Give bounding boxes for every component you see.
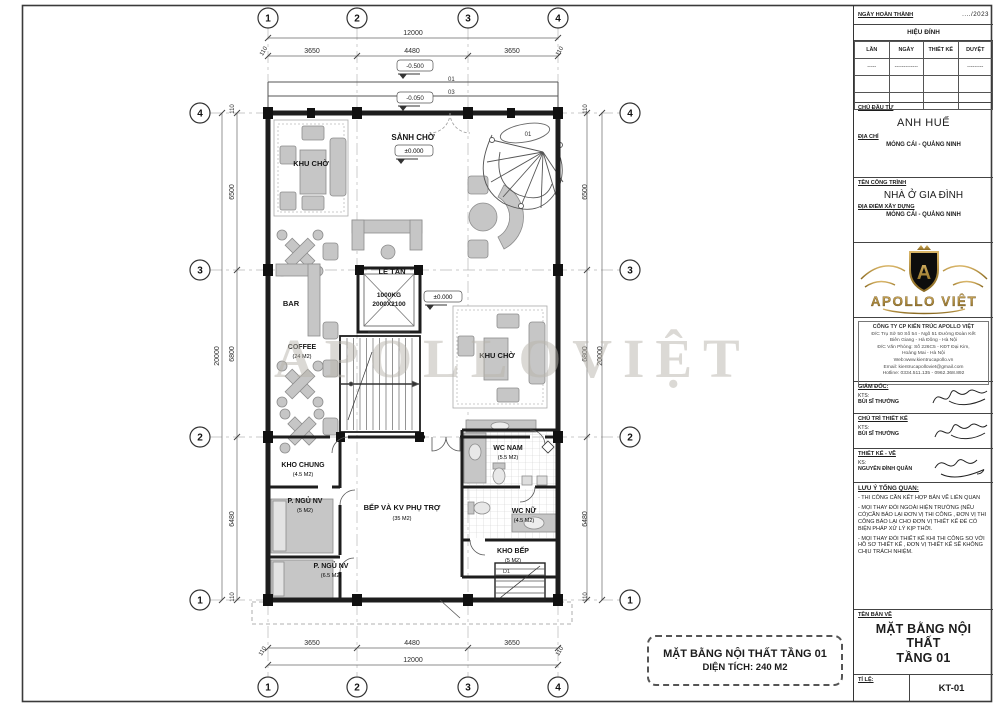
rev-cell bbox=[855, 76, 890, 93]
logo-brand-text: APOLLO VIỆT bbox=[870, 294, 977, 309]
dim-right-110a: 110 bbox=[583, 104, 589, 114]
room-area-kho-chung: (4.5 M2) bbox=[293, 472, 314, 478]
room-area-ngu2: (6.5 M2) bbox=[321, 573, 342, 579]
general-notes: LƯU Ý TỔNG QUAN: - THI CÔNG CẦN KẾT HỢP … bbox=[854, 483, 993, 610]
drawing-title-line1: MẶT BẰNG NỘI THẤT bbox=[858, 622, 989, 650]
room-label-ngu1: P. NGỦ NV bbox=[288, 496, 323, 505]
company-line: Hotline: 0334.511.135 - 0962.368.892 bbox=[860, 371, 987, 378]
sig-name: NGUYỄN ĐÌNH QUÂN bbox=[858, 466, 920, 472]
dim-left-6500: 6500 bbox=[229, 184, 236, 200]
level-step: -0.050 bbox=[406, 95, 424, 102]
lift-label-1: 1000KG bbox=[377, 292, 401, 299]
dim-top-3650b: 3650 bbox=[504, 48, 520, 55]
svg-text:1: 1 bbox=[265, 14, 271, 25]
door-tag-d1: D1 bbox=[503, 569, 510, 575]
spiral-stair-tag: 01 bbox=[525, 132, 532, 138]
plan-caption: MẶT BẰNG NỘI THẤT TẦNG 01 DIỆN TÍCH: 240… bbox=[647, 635, 843, 686]
sig-role: CHỦ TRÌ THIẾT KẾ bbox=[858, 416, 920, 422]
company-logo: A APOLLO VIỆT bbox=[857, 245, 991, 316]
dim-top-total: 12000 bbox=[403, 30, 423, 37]
main-stair bbox=[340, 338, 420, 430]
drawing-title-label: TÊN BẢN VẼ bbox=[858, 612, 989, 618]
project-name: NHÀ Ở GIA ĐÌNH bbox=[858, 190, 989, 201]
room-area-bep: (35 M2) bbox=[393, 516, 412, 522]
svg-text:4: 4 bbox=[555, 14, 561, 25]
room-label-coffee: COFFEE bbox=[288, 344, 317, 351]
svg-text:3: 3 bbox=[197, 266, 203, 277]
company-info-section: CÔNG TY CP KIẾN TRÚC APOLLO VIỆT Đ/C Trụ… bbox=[854, 318, 993, 382]
dim-right-6500: 6500 bbox=[582, 184, 589, 200]
owner-name: ANH HUẾ bbox=[858, 117, 989, 129]
dim-left-6800: 6800 bbox=[229, 346, 236, 362]
company-line: Biên Giang - Hà Đông - Hà Nội bbox=[860, 338, 987, 345]
level-lobby: ±0.000 bbox=[405, 148, 424, 155]
dim-right-total: 20000 bbox=[597, 346, 604, 366]
signature-draftsman: THIẾT KẾ - VẼ KS: NGUYỄN ĐÌNH QUÂN bbox=[854, 449, 993, 483]
company-line: Web:www.kientrucapollo.vn bbox=[860, 358, 987, 365]
room-area-kho-bep: (5 M2) bbox=[505, 558, 521, 564]
owner-section: CHỦ ĐẦU TƯ ANH HUẾ ĐỊA CHỈ MÓNG CÁI - QU… bbox=[854, 103, 993, 178]
svg-text:4: 4 bbox=[627, 109, 633, 120]
svg-text:2: 2 bbox=[627, 433, 633, 444]
signature-mark bbox=[927, 383, 991, 411]
completion-date-label: NGÀY HOÀN THÀNH bbox=[858, 12, 913, 18]
rev-cell bbox=[958, 76, 993, 93]
dim-bot-total: 12000 bbox=[403, 657, 423, 664]
dim-right-110b: 110 bbox=[583, 592, 589, 602]
svg-text:4: 4 bbox=[555, 683, 561, 694]
dim-bot-4480: 4480 bbox=[404, 640, 420, 647]
room-label-khu-cho: KHU CHỜ bbox=[293, 159, 329, 168]
room-area-wc-nu: (4.5 M2) bbox=[514, 518, 535, 524]
sig-role: GIÁM ĐỐC: bbox=[858, 384, 920, 390]
sheet-number: KT-01 bbox=[910, 675, 993, 702]
dim-bot-110b: 110 bbox=[555, 645, 565, 657]
svg-text:3: 3 bbox=[465, 14, 471, 25]
plan-caption-title: MẶT BẰNG NỘI THẤT TẦNG 01 bbox=[663, 648, 827, 660]
svg-text:2: 2 bbox=[197, 433, 203, 444]
note-item: - MỌI THAY ĐỔI THIẾT KẾ KHI THI CÔNG SO … bbox=[858, 536, 989, 557]
svg-text:2: 2 bbox=[354, 14, 360, 25]
scale-and-number-row: TỈ LỆ: KT-01 bbox=[854, 675, 993, 702]
dim-top-3650a: 3650 bbox=[304, 48, 320, 55]
spiral-stair bbox=[483, 120, 563, 210]
owner-address-label: ĐỊA CHỈ bbox=[858, 134, 989, 140]
logo-crown bbox=[917, 245, 931, 250]
level-tag03: 03 bbox=[448, 90, 455, 96]
completion-date-value: ..../2023 bbox=[962, 11, 989, 18]
room-label-bar: BAR bbox=[283, 299, 300, 308]
room-area-wc-nam: (5.5 M2) bbox=[498, 455, 519, 461]
signature-director: GIÁM ĐỐC: KTS: BÙI SĨ THƯỞNG bbox=[854, 382, 993, 414]
svg-text:4: 4 bbox=[197, 109, 203, 120]
room-label-le-tan: LỄ TÂN bbox=[378, 267, 405, 276]
svg-text:1: 1 bbox=[265, 683, 271, 694]
floor-plan-svg: 12000 110 3650 4480 3650 110 12000 110 3… bbox=[0, 0, 1000, 707]
dim-left-6480: 6480 bbox=[229, 511, 236, 527]
rev-cell bbox=[889, 76, 924, 93]
project-section: TÊN CÔNG TRÌNH NHÀ Ở GIA ĐÌNH ĐỊA ĐIỂM X… bbox=[854, 178, 993, 243]
level-tag01: 01 bbox=[448, 77, 455, 83]
project-site-label: ĐỊA ĐIỂM XÂY DỰNG bbox=[858, 204, 989, 210]
sig-name: BÙI SĨ THƯỞNG bbox=[858, 431, 920, 437]
room-label-sanh-cho: SẢNH CHỜ bbox=[391, 133, 434, 142]
note-item: - THI CÔNG CẦN KẾT HỢP BẢN VẼ LIÊN QUAN bbox=[858, 495, 989, 502]
logo-section: A APOLLO VIỆT bbox=[854, 243, 993, 318]
drawing-sheet: 12000 110 3650 4480 3650 110 12000 110 3… bbox=[0, 0, 1000, 707]
dim-left-110b: 110 bbox=[230, 592, 236, 602]
room-label-bep: BẾP VÀ KV PHỤ TRỢ bbox=[364, 502, 441, 512]
rev-cell: --------- bbox=[958, 59, 993, 76]
dim-top-4480: 4480 bbox=[404, 48, 420, 55]
signature-mark bbox=[927, 450, 991, 480]
dim-right-6480: 6480 bbox=[582, 511, 589, 527]
plan-caption-area: DIỆN TÍCH: 240 M2 bbox=[703, 662, 788, 673]
room-label-ngu2: P. NGỦ NV bbox=[314, 561, 349, 570]
room-label-kho-chung: KHO CHUNG bbox=[281, 462, 325, 469]
dim-left-total: 20000 bbox=[214, 346, 221, 366]
drawing-title-section: TÊN BẢN VẼ MẶT BẰNG NỘI THẤT TẦNG 01 bbox=[854, 610, 993, 675]
owner-label: CHỦ ĐẦU TƯ bbox=[858, 105, 989, 111]
project-label: TÊN CÔNG TRÌNH bbox=[858, 180, 989, 186]
level-porch: -0.500 bbox=[406, 63, 424, 70]
rev-cell bbox=[924, 59, 959, 76]
room-area-coffee: (24 M2) bbox=[293, 354, 312, 360]
owner-address: MÓNG CÁI - QUẢNG NINH bbox=[858, 142, 989, 148]
lift-label-2: 2000X2100 bbox=[372, 301, 406, 308]
rev-cell bbox=[924, 76, 959, 93]
rev-col-thietke: THIẾT KẾ bbox=[924, 42, 959, 59]
dim-left-110a: 110 bbox=[230, 104, 236, 114]
notes-title: LƯU Ý TỔNG QUAN: bbox=[858, 485, 989, 492]
rev-col-lan: LẦN bbox=[855, 42, 890, 59]
level-lift: ±0.000 bbox=[434, 294, 453, 301]
signature-lead-designer: CHỦ TRÌ THIẾT KẾ KTS: BÙI SĨ THƯỞNG bbox=[854, 414, 993, 449]
sig-name: BÙI SĨ THƯỞNG bbox=[858, 399, 920, 405]
dim-right-6800: 6800 bbox=[582, 346, 589, 362]
dim-bot-110a: 110 bbox=[258, 645, 268, 657]
note-item: - MỌI THAY ĐỔI NGOÀI HIỆN TRƯỜNG (NẾU CÓ… bbox=[858, 505, 989, 533]
dim-top-110b: 110 bbox=[555, 45, 565, 57]
company-info-box: CÔNG TY CP KIẾN TRÚC APOLLO VIỆT Đ/C Trụ… bbox=[858, 321, 989, 385]
room-label-wc-nu: WC NỮ bbox=[512, 506, 537, 515]
sig-role: THIẾT KẾ - VẼ bbox=[858, 451, 920, 457]
svg-text:1: 1 bbox=[627, 596, 633, 607]
dim-bot-3650b: 3650 bbox=[504, 640, 520, 647]
svg-text:1: 1 bbox=[197, 596, 203, 607]
level-tags: -0.500 01 -0.050 03 bbox=[397, 60, 455, 111]
company-name: CÔNG TY CP KIẾN TRÚC APOLLO VIỆT bbox=[860, 324, 987, 331]
project-site: MÓNG CÁI - QUẢNG NINH bbox=[858, 212, 989, 218]
room-area-ngu1: (5 M2) bbox=[297, 508, 313, 514]
completion-date-row: NGÀY HOÀN THÀNH ..../2023 bbox=[854, 5, 993, 25]
scale-label: TỈ LỆ: bbox=[858, 677, 874, 683]
signature-mark bbox=[927, 415, 991, 445]
rev-col-ngay: NGÀY bbox=[889, 42, 924, 59]
revision-table: HIỆU ĐÍNH LẦN NGÀY THIẾT KẾ DUYỆT ----- … bbox=[854, 25, 993, 103]
svg-text:2: 2 bbox=[354, 683, 360, 694]
room-label-khu-cho2: KHU CHỜ bbox=[479, 351, 515, 360]
drawing-title-line2: TẦNG 01 bbox=[858, 651, 989, 665]
logo-monogram: A bbox=[916, 262, 930, 284]
dim-bot-3650a: 3650 bbox=[304, 640, 320, 647]
svg-text:3: 3 bbox=[627, 266, 633, 277]
room-label-kho-bep: KHO BẾP bbox=[497, 545, 529, 555]
rev-cell: ----- bbox=[855, 59, 890, 76]
revision-title: HIỆU ĐÍNH bbox=[854, 25, 993, 41]
svg-text:3: 3 bbox=[465, 683, 471, 694]
company-line: Hoàng Mai - Hà Nội bbox=[860, 351, 987, 358]
title-block: NGÀY HOÀN THÀNH ..../2023 HIỆU ĐÍNH LẦN … bbox=[853, 5, 993, 702]
rev-cell: ------------- bbox=[889, 59, 924, 76]
room-label-wc-nam: WC NAM bbox=[493, 445, 523, 452]
rev-col-duyet: DUYỆT bbox=[958, 42, 993, 59]
